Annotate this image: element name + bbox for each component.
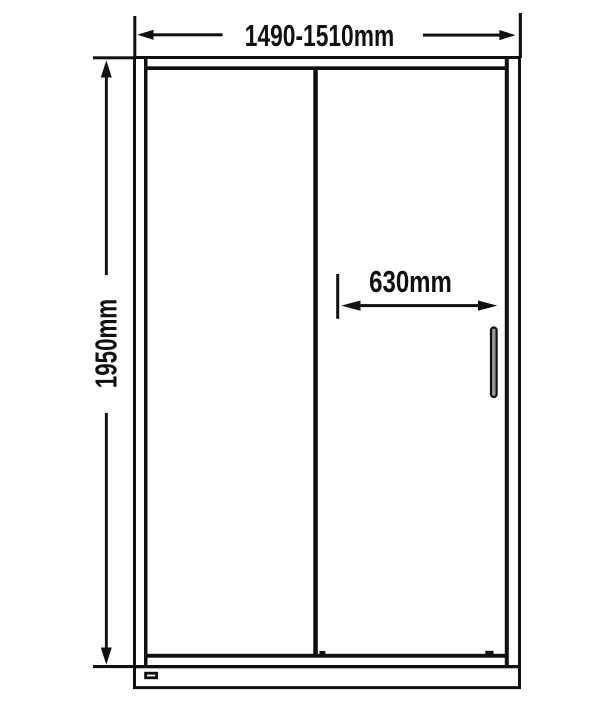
svg-text:1490-1510mm: 1490-1510mm (245, 17, 394, 52)
svg-text:630mm: 630mm (369, 264, 452, 299)
svg-text:1950mm: 1950mm (89, 299, 123, 388)
